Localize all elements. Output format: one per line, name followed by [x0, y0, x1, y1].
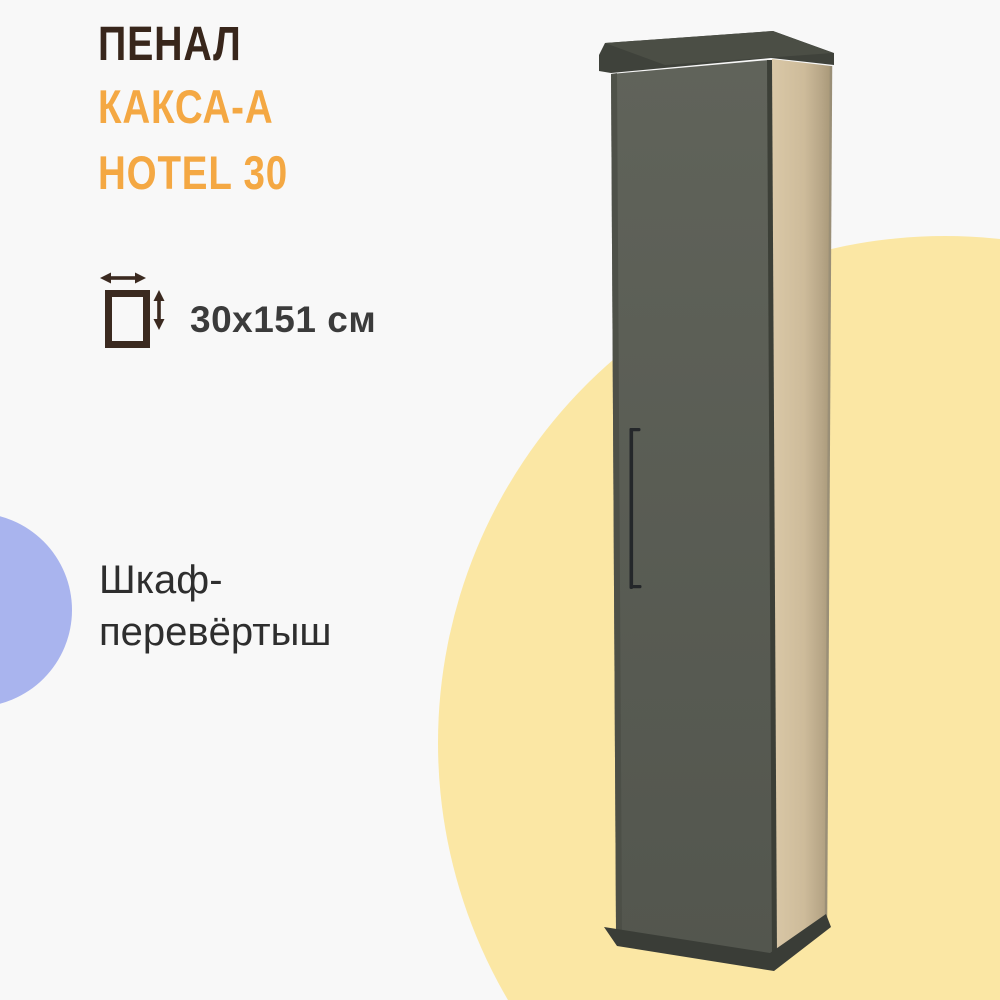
- cabinet-side-panel: [772, 59, 831, 956]
- cabinet-door: [611, 60, 774, 957]
- product-category-text: ПЕНАЛ: [98, 20, 242, 70]
- product-model-text-2: HOTEL 30: [98, 148, 288, 197]
- product-card: ПЕНАЛ КАКСА-А HOTEL 30 30x151 см Шкаф- п…: [0, 0, 1000, 1000]
- width-height-arrows-icon: [100, 268, 170, 354]
- product-category-title: ПЕНАЛ: [98, 20, 273, 70]
- product-description-line1: Шкаф-: [99, 554, 331, 606]
- product-model-line1: КАКСА-А: [98, 82, 312, 131]
- product-description: Шкаф- перевёртыш: [99, 554, 331, 658]
- cabinet-render: [599, 31, 834, 971]
- product-description-line2: перевёртыш: [99, 606, 331, 658]
- dimensions-value: 30x151 см: [190, 301, 376, 338]
- blue-circle-decoration: [0, 513, 72, 707]
- product-model-text-1: КАКСА-А: [98, 82, 273, 131]
- product-model-line2: HOTEL 30: [98, 148, 330, 197]
